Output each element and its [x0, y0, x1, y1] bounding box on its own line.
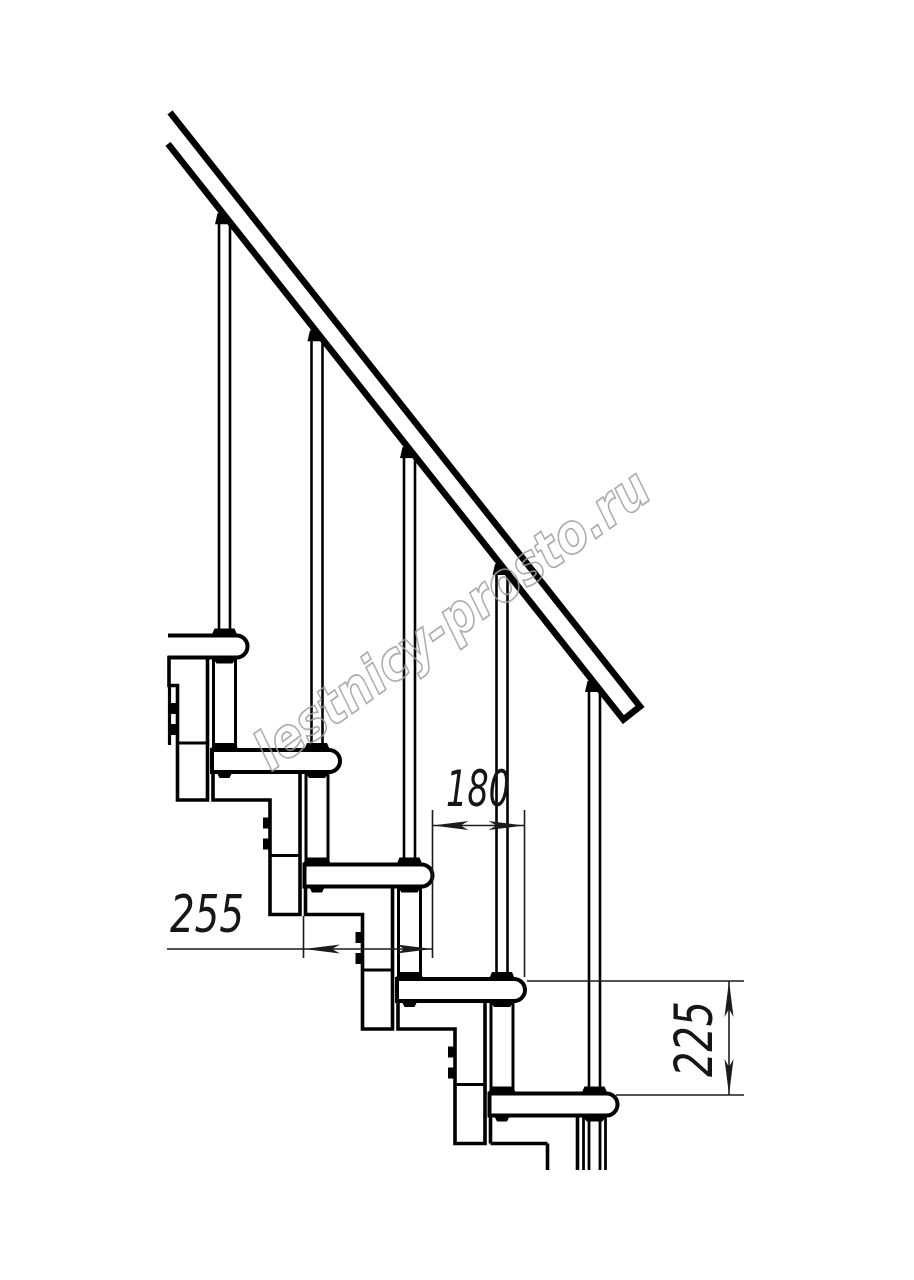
- pipe-landing-plate-2: [211, 743, 239, 750]
- tread-3: [305, 865, 433, 887]
- staircase-technical-drawing: 255 180 225 lestnicy-prosto.ru: [0, 0, 914, 1280]
- support-module-3: [306, 887, 393, 1030]
- pipe-landing-plate-3: [303, 858, 331, 865]
- dimension-label-180: 180: [446, 760, 510, 818]
- support-module-5-fill2: [548, 1116, 578, 1171]
- baluster-base-plate-3: [397, 858, 423, 865]
- pipe-top-plate-4: [490, 1001, 514, 1007]
- tread-5: [490, 1094, 618, 1116]
- pipe-landing-plate-5: [488, 1087, 516, 1094]
- bolt-tab-8: [448, 1068, 456, 1079]
- bolt-tab-7: [448, 1047, 456, 1058]
- baluster-base-plate-4: [489, 972, 515, 979]
- tread-4: [397, 979, 525, 1001]
- pipe-landing-plate-4: [396, 972, 424, 979]
- pipe-top-plate-5: [583, 1116, 607, 1122]
- bolt-tab-2: [171, 724, 179, 735]
- pipe-fill-4: [491, 1001, 513, 1094]
- pipe-fill-3: [399, 887, 421, 980]
- pipe-top-plate-2: [305, 772, 329, 778]
- bolt-tab-4: [263, 839, 271, 850]
- bolt-tab-1: [171, 703, 179, 714]
- pipe-fill-2: [306, 772, 328, 865]
- pipe-top-plate-3: [398, 887, 422, 893]
- tread-1: [168, 636, 248, 658]
- support-module-4: [398, 1001, 485, 1144]
- bolt-tab-6: [356, 953, 364, 964]
- baluster-base-plate-5: [582, 1087, 608, 1094]
- dimension-label-225: 225: [664, 1001, 725, 1077]
- bolt-tab-3: [263, 818, 271, 829]
- pipe-fill-1: [214, 658, 236, 751]
- dimension-label-255: 255: [170, 885, 244, 945]
- drawing-sheet: 255 180 225 lestnicy-prosto.ru: [0, 0, 914, 1280]
- baluster-base-plate-1: [212, 629, 238, 636]
- bolt-tab-5: [356, 932, 364, 943]
- pipe-top-plate-1: [213, 658, 237, 664]
